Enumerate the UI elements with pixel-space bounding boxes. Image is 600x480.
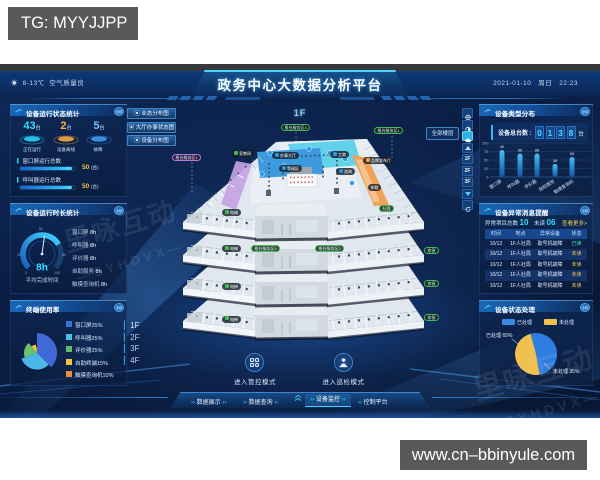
svg-text:触摸查询机: 触摸查询机 [552,177,575,195]
svg-text:0: 0 [25,271,27,275]
svg-text:75: 75 [484,149,489,154]
svg-text:20: 20 [17,253,21,257]
svg-text:0: 0 [486,175,489,180]
svg-text:38: 38 [553,158,558,163]
svg-text:80: 80 [62,253,66,257]
svg-text:100: 100 [54,271,60,275]
svg-text:50: 50 [484,158,489,163]
svg-text:评价器: 评价器 [523,177,539,190]
svg-text:50: 50 [39,227,43,231]
svg-text:60: 60 [570,151,575,156]
svg-text:40: 40 [500,144,505,149]
svg-text:8h: 8h [36,263,48,274]
svg-text:窗口屏: 窗口屏 [488,177,504,190]
svg-text:平均完成时间: 平均完成时间 [25,276,58,284]
svg-text:88: 88 [518,148,523,153]
svg-text:25: 25 [484,166,489,171]
svg-text:100: 100 [482,141,489,146]
svg-text:88: 88 [535,148,540,153]
svg-text:呼叫器: 呼叫器 [506,177,522,190]
